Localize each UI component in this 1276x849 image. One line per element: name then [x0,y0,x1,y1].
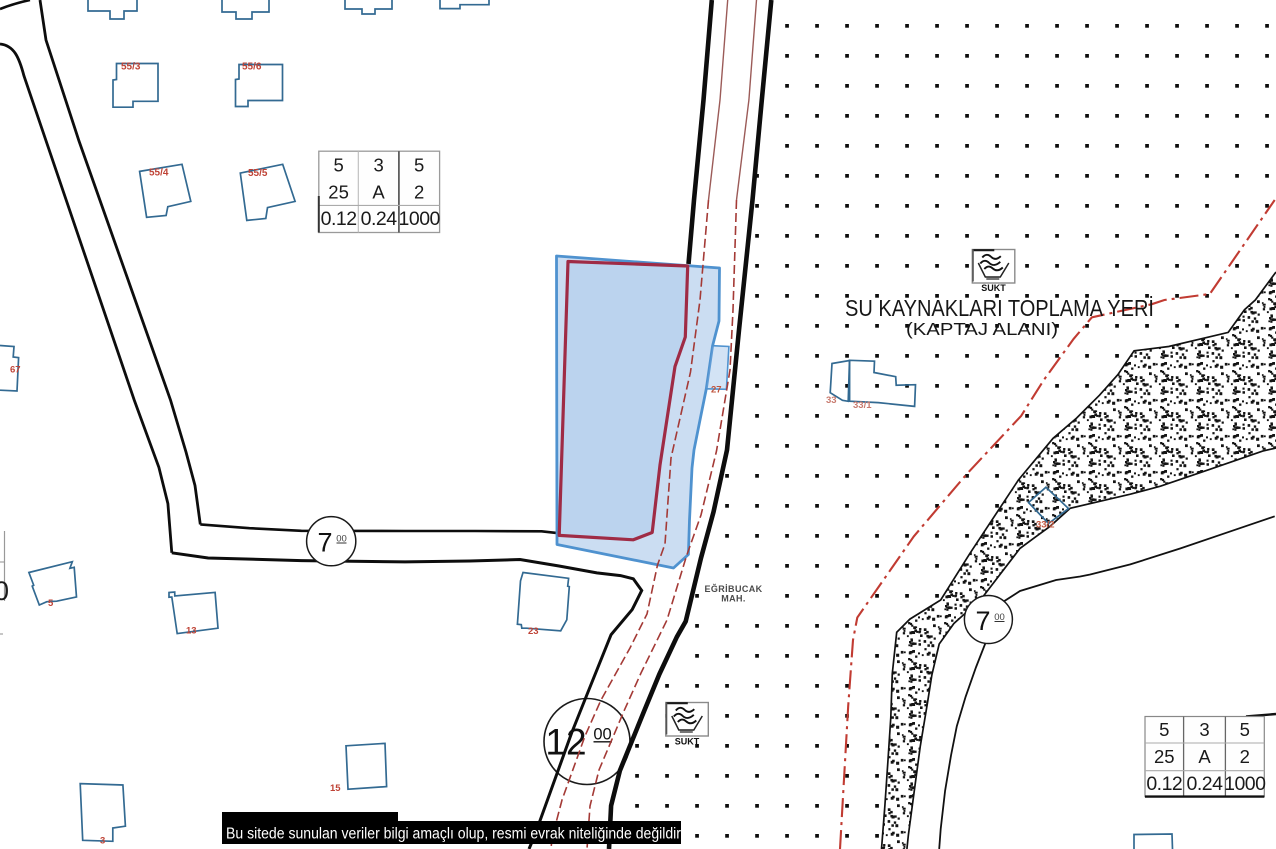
svg-text:00: 00 [593,726,611,744]
svg-text:55/6: 55/6 [242,62,262,73]
svg-text:12: 12 [545,722,586,763]
svg-text:2: 2 [414,182,424,203]
svg-text:33: 33 [826,395,837,406]
svg-text:25: 25 [328,182,349,203]
svg-text:A: A [372,182,385,203]
svg-text:0: 0 [0,576,9,606]
svg-text:A: A [1198,746,1211,767]
svg-text:7: 7 [975,606,990,636]
svg-text:33/2: 33/2 [1036,520,1055,531]
svg-text:7: 7 [317,528,332,558]
svg-text:2: 2 [1240,746,1250,767]
svg-text:(KAPTAJ ALANI): (KAPTAJ ALANI) [906,319,1058,339]
svg-text:23: 23 [528,626,539,637]
svg-text:0.24: 0.24 [361,208,398,230]
svg-text:0.12: 0.12 [1146,773,1182,795]
svg-text:Bu sitede sunulan veriler bilg: Bu sitede sunulan veriler bilgi amaçlı o… [226,826,688,843]
svg-text:67: 67 [10,365,21,376]
svg-text:5: 5 [414,155,424,176]
svg-text:3: 3 [1199,719,1209,740]
svg-text:SUKT: SUKT [981,283,1006,293]
svg-text:EĞRİBUCAK: EĞRİBUCAK [704,583,762,594]
svg-text:3: 3 [373,155,383,176]
svg-text:SU KAYNAKLARI TOPLAMA YERİ: SU KAYNAKLARI TOPLAMA YERİ [845,295,1154,321]
svg-text:0.12: 0.12 [321,208,357,230]
svg-text:5: 5 [1240,719,1250,740]
svg-text:33/1: 33/1 [853,400,872,411]
svg-text:5: 5 [48,598,54,609]
svg-text:3: 3 [100,836,105,847]
svg-text:13: 13 [186,626,197,637]
svg-text:SUKT: SUKT [675,737,700,747]
svg-text:1000: 1000 [399,208,441,230]
svg-text:55/4: 55/4 [149,168,169,179]
svg-text:1000: 1000 [1224,773,1266,795]
svg-text:55/3: 55/3 [121,62,141,73]
svg-text:MAH.: MAH. [721,594,746,604]
svg-text:5: 5 [333,155,343,176]
svg-text:15: 15 [330,783,341,794]
svg-text:0.24: 0.24 [1187,773,1224,795]
svg-text:25: 25 [1154,746,1175,767]
svg-text:55/5: 55/5 [248,168,268,179]
svg-text:5: 5 [1159,719,1169,740]
svg-text:27: 27 [711,385,722,396]
